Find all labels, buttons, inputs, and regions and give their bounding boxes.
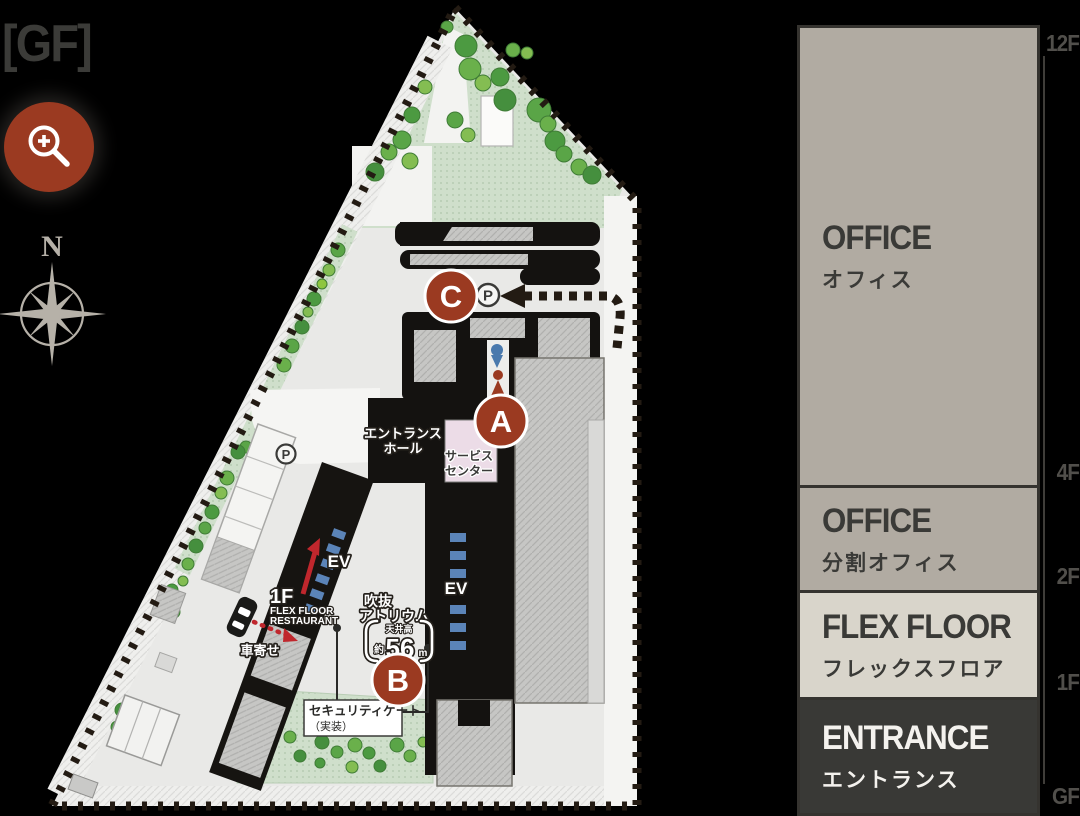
- floor-name-en: OFFICE: [822, 219, 1020, 258]
- marker-C[interactable]: C: [425, 270, 477, 322]
- svg-text:センター: センター: [445, 464, 493, 478]
- floor-scale-4f: 4F: [1046, 459, 1079, 486]
- floor-name-ja: エントランス: [822, 764, 1037, 794]
- floor-scale-1f: 1F: [1046, 669, 1079, 696]
- svg-text:m: m: [419, 648, 428, 659]
- svg-text:RESTAURANT: RESTAURANT: [270, 616, 338, 627]
- svg-text:約: 約: [374, 643, 384, 656]
- floor-scale-2f: 2F: [1046, 563, 1079, 590]
- floor-name-ja: フレックスフロア: [822, 653, 1037, 683]
- floor-name-en: ENTRANCE: [822, 719, 1020, 758]
- floor-name-ja: 分割オフィス: [822, 547, 1037, 577]
- svg-text:B: B: [387, 663, 409, 698]
- ev-label-east: EV: [445, 579, 468, 598]
- floor-name-ja: オフィス: [822, 264, 1037, 294]
- floor-name-en: FLEX FLOOR: [822, 608, 1020, 647]
- ev-label-west: EV: [328, 552, 351, 571]
- parking-icon-north: P: [477, 284, 499, 306]
- floor-block-office-split[interactable]: OFFICE 分割オフィス: [800, 488, 1037, 593]
- svg-text:C: C: [440, 279, 462, 314]
- floor-scale-gf: GF: [1046, 783, 1079, 810]
- svg-text:サービス: サービス: [445, 448, 493, 463]
- floor-scale-line: [1043, 56, 1045, 784]
- restaurant-floor-label: 1F: [270, 586, 293, 608]
- floor-guide-page: [GF] N: [0, 0, 1080, 816]
- atrium-label: 吹抜: [364, 593, 393, 609]
- floor-block-flex-floor[interactable]: FLEX FLOOR フレックスフロア: [800, 593, 1037, 700]
- marker-A[interactable]: A: [475, 395, 527, 447]
- svg-text:ホール: ホール: [383, 441, 422, 456]
- building-section-sidebar: OFFICE オフィス OFFICE 分割オフィス FLEX FLOOR フレッ…: [797, 25, 1040, 816]
- svg-text:P: P: [282, 447, 291, 462]
- site-plan-map: P P: [0, 0, 660, 816]
- floor-block-office[interactable]: OFFICE オフィス: [800, 28, 1037, 488]
- floor-name-en: OFFICE: [822, 502, 1020, 541]
- car-drop-label: 車寄せ: [240, 643, 279, 658]
- svg-text:P: P: [483, 288, 493, 305]
- security-gate-note: （実装）: [309, 719, 353, 733]
- floor-block-entrance[interactable]: ENTRANCE エントランス: [800, 700, 1037, 813]
- marker-B[interactable]: B: [372, 654, 424, 706]
- floor-scale-12f: 12F: [1046, 30, 1079, 57]
- svg-text:A: A: [490, 404, 512, 439]
- entrance-hall-label: エントランス: [364, 426, 442, 441]
- parking-icon-west: P: [277, 445, 296, 464]
